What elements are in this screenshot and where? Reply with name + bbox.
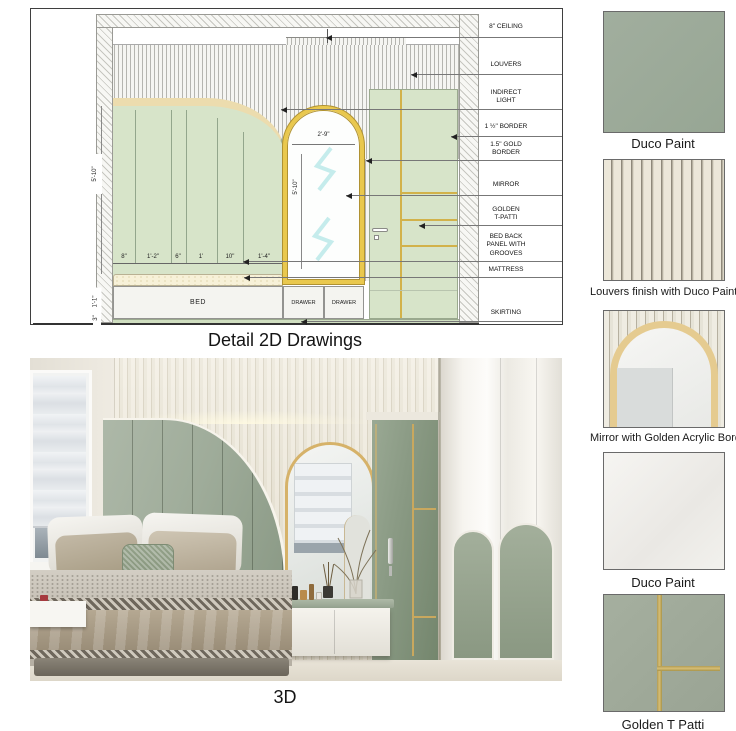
annotation-label: LOUVERS <box>456 61 556 69</box>
annotation-label: 8" CEILING <box>456 23 556 31</box>
gold-t-patti-line <box>412 508 436 510</box>
annotation-label: MIRROR <box>456 181 556 189</box>
material-caption: Duco Paint <box>590 575 736 590</box>
drawer-label: DRAWER <box>291 300 315 306</box>
decor-branches <box>330 522 382 602</box>
annotation-leader <box>301 321 562 322</box>
gold-t-patti-line <box>412 616 436 618</box>
material-caption: Louvers finish with Duco Paint <box>590 286 736 298</box>
drawer-box: DRAWER <box>324 286 364 319</box>
detail-2d-drawing: 8" 1'-2" 6" 1' 10" 1'-4" BED DRAWER DRAW… <box>30 8 563 325</box>
dim-label: 1'-2" <box>140 254 166 260</box>
nightstand <box>30 601 86 627</box>
mattress <box>113 274 283 286</box>
panel-groove <box>135 110 136 263</box>
panel-groove <box>217 118 218 263</box>
panel-seam <box>370 290 457 291</box>
door-handle <box>388 538 393 564</box>
panel-groove <box>186 110 187 263</box>
annotation-label: 1 ½" BORDER <box>456 123 556 131</box>
dim-label: 10" <box>217 254 243 260</box>
materials-column: Duco Paint Louvers finish with Duco Pain… <box>590 0 736 731</box>
wall-hatch-top <box>96 14 479 28</box>
annotation-leader <box>244 277 562 278</box>
panel-height-dim: 5'-10" <box>92 154 102 194</box>
annotation-label: MATTRESS <box>456 266 556 274</box>
gold-t-patti-line <box>400 90 402 318</box>
annotation-label: BED BACK PANEL WITH GROOVES <box>456 233 556 258</box>
design-presentation-board: 8" 1'-2" 6" 1' 10" 1'-4" BED DRAWER DRAW… <box>0 0 736 731</box>
door-lintel <box>366 412 444 420</box>
dim-label: 1'-4" <box>251 254 277 260</box>
material-caption: Mirror with Golden Acrylic Border <box>590 432 736 444</box>
diffuser-vase <box>323 586 333 598</box>
dim-label: 8" <box>111 254 137 260</box>
annotation-leader <box>326 37 562 38</box>
panel-groove <box>243 132 244 263</box>
gold-arch-border <box>610 321 718 428</box>
annotation-leader <box>281 109 562 110</box>
perfume-bottle <box>316 592 322 600</box>
annotation-leader <box>451 136 562 137</box>
drawer-seam <box>334 610 335 654</box>
material-swatch-t-patti <box>603 594 725 712</box>
gold-t-patti-line <box>657 595 662 711</box>
wardrobe-column <box>441 358 562 660</box>
drawer-box: DRAWER <box>283 286 324 319</box>
annotation-leader <box>411 74 562 75</box>
material-swatch-duco-green <box>603 11 725 133</box>
bed-label: BED <box>190 299 206 306</box>
dresser <box>280 608 390 656</box>
arched-wardrobe-insert <box>498 523 554 660</box>
gold-t-patti-line <box>400 219 457 221</box>
material-swatch-louvers <box>603 159 725 281</box>
panel-groove <box>171 110 172 263</box>
door-lock <box>389 566 392 576</box>
annotation-leader <box>419 225 562 226</box>
bed-box: BED <box>113 286 283 319</box>
drawer-label: DRAWER <box>332 300 356 306</box>
door-handle <box>372 228 388 232</box>
perfume-bottle <box>309 584 314 600</box>
annotation-label: SKIRTING <box>456 309 556 317</box>
dimension-line <box>113 263 286 264</box>
perfume-bottle <box>300 590 307 600</box>
material-caption: Duco Paint <box>590 136 736 151</box>
gold-t-patti-line <box>412 424 414 656</box>
gold-t-patti-line <box>400 245 457 247</box>
material-swatch-mirror <box>603 310 725 428</box>
skirting-height-dim: 3" <box>93 310 101 326</box>
annotation-leader <box>243 261 562 262</box>
gold-t-patti-line <box>657 666 720 671</box>
annotation-label: 1.5" GOLD BORDER <box>456 141 556 158</box>
annotation-leader <box>346 195 562 196</box>
arched-wardrobe-insert <box>452 530 494 660</box>
door-lock <box>374 235 379 240</box>
dim-label: 1' <box>188 254 214 260</box>
mirror-reflection <box>617 368 673 428</box>
nightstand-decor <box>40 595 48 601</box>
material-caption: Golden T Patti <box>590 717 736 731</box>
drawing-caption: Detail 2D Drawings <box>30 330 540 351</box>
render-caption: 3D <box>30 687 540 708</box>
annotation-label: INDIRECT LIGHT <box>456 89 556 106</box>
annotation-leader <box>366 160 562 161</box>
annotation-label: GOLDEN T-PATTI <box>456 206 556 223</box>
perfume-bottle <box>292 586 298 600</box>
render-3d <box>30 358 562 681</box>
gold-t-patti-line <box>400 192 457 194</box>
material-swatch-duco-white <box>603 452 725 570</box>
wardrobe-door <box>369 89 458 319</box>
bed-base <box>34 658 289 676</box>
roman-blind <box>33 376 86 528</box>
